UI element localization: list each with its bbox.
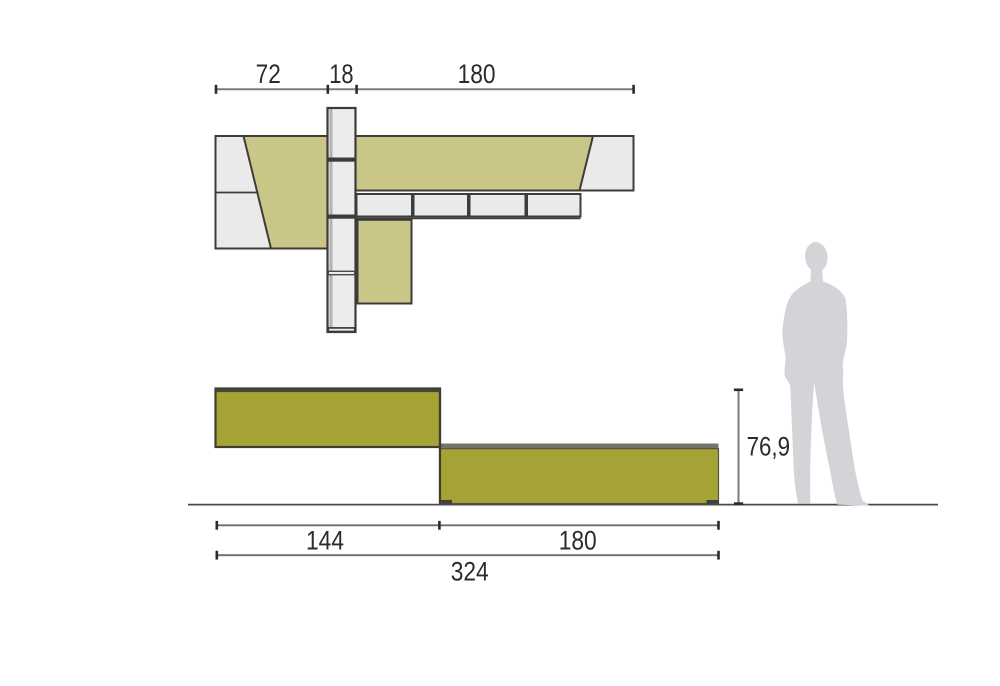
svg-text:180: 180 <box>458 59 496 89</box>
svg-text:76,9: 76,9 <box>747 432 790 462</box>
svg-text:180: 180 <box>559 525 597 555</box>
svg-text:324: 324 <box>451 557 489 587</box>
svg-text:72: 72 <box>256 59 281 89</box>
svg-text:18: 18 <box>329 59 353 89</box>
svg-text:144: 144 <box>306 525 344 555</box>
